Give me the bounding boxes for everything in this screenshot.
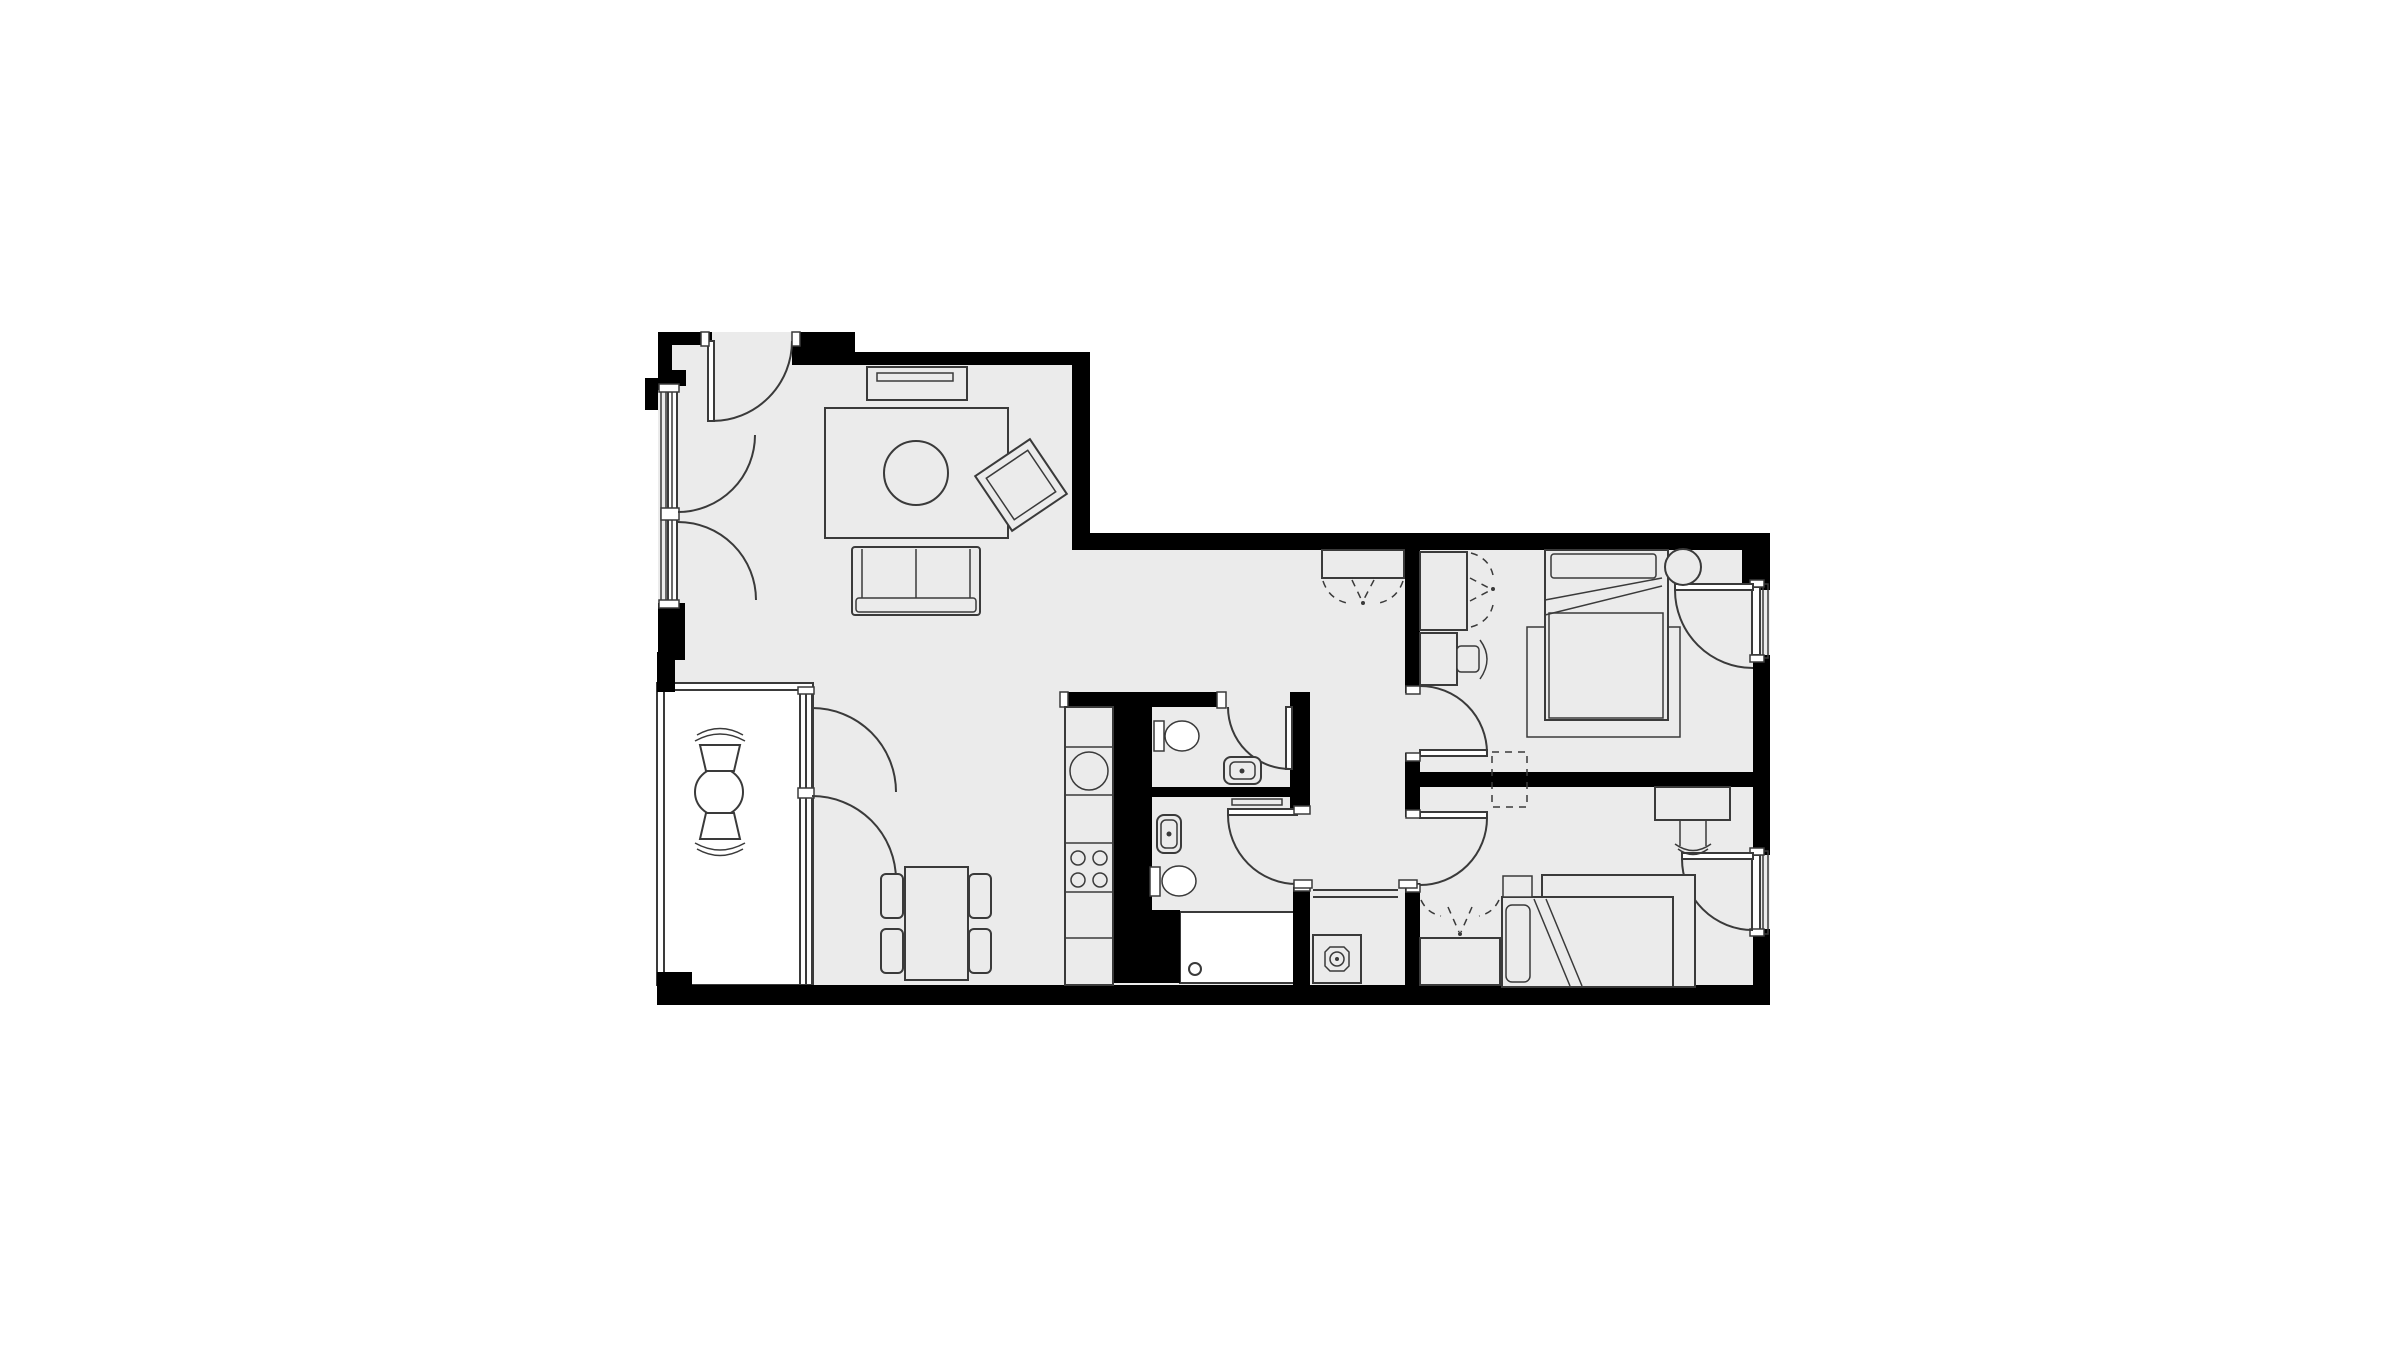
bedroom1-bed-frame xyxy=(1545,550,1668,720)
shower-tray xyxy=(1180,912,1295,983)
bedroom1-wardrobe-dot xyxy=(1491,587,1495,591)
bedroom1-wardrobe xyxy=(1420,552,1467,630)
bedroom1-door-leaf xyxy=(1420,750,1487,756)
wall-left-mid xyxy=(658,603,685,660)
kitchen-wall-jamb xyxy=(1060,692,1068,707)
bathroom1-sink-tap xyxy=(1240,769,1245,774)
wall-left-mid-lower xyxy=(657,652,675,692)
wall-living-right xyxy=(1072,363,1090,535)
wall-corridor-right-upper xyxy=(1405,543,1420,693)
bedroom2-door-jamb-top xyxy=(1406,810,1420,818)
wall-left-nub xyxy=(645,378,658,410)
wall-bedroom-divider xyxy=(1405,772,1770,787)
window-left-tick-bottom xyxy=(659,600,679,608)
bathroom2-door-jamb-top xyxy=(1294,806,1310,814)
wall-north xyxy=(1072,533,1770,550)
floor-living-right xyxy=(855,352,1090,692)
bedroom2-desk xyxy=(1655,787,1730,820)
bedroom2-door-leaf xyxy=(1420,812,1487,818)
bathroom2-toilet-bowl xyxy=(1162,866,1196,896)
entry-jamb-left xyxy=(701,332,709,346)
wall-right-mid xyxy=(1753,655,1770,855)
bedroom1-door-jamb-bottom xyxy=(1406,753,1420,761)
balcony-table xyxy=(695,768,743,816)
bathroom1-door-jamb xyxy=(1217,692,1226,708)
hall-door-jamb-left xyxy=(1294,880,1312,888)
window-left-mullion xyxy=(661,508,679,520)
hall-door-jamb-right xyxy=(1399,880,1417,888)
dining-chair-1 xyxy=(881,874,903,918)
balcony-chair-top-seat xyxy=(700,745,740,771)
window-left-tick-top xyxy=(659,384,679,392)
coffee-table xyxy=(884,441,948,505)
entry-jamb-right xyxy=(792,332,800,346)
wall-bath-divider xyxy=(1152,787,1297,797)
bathroom2-toilet-tank xyxy=(1150,867,1160,896)
corridor-wardrobe-dot xyxy=(1361,601,1365,605)
floor-plan-page xyxy=(0,0,2400,1350)
dining-chair-3 xyxy=(969,874,991,918)
window-bedroom1-glass xyxy=(1752,587,1760,655)
wall-top-c xyxy=(855,352,1090,365)
corridor-wardrobe xyxy=(1322,550,1404,578)
dining-chair-2 xyxy=(881,929,903,973)
balcony-chair-bottom-seat xyxy=(700,813,740,839)
bedroom2-bed-frame xyxy=(1502,897,1673,987)
wall-bath2-right-lower xyxy=(1293,887,1310,985)
bathroom1-toilet-bowl xyxy=(1165,721,1199,751)
balcony-glazing-top-tick xyxy=(798,687,814,694)
entry-door-leaf xyxy=(708,341,714,421)
washing-machine-dot xyxy=(1335,957,1339,961)
bathroom2-door-leaf xyxy=(1228,809,1297,815)
bathroom1-toilet-tank xyxy=(1154,721,1164,751)
wall-top-b xyxy=(792,332,855,365)
wall-hall-bedroom2 xyxy=(1405,883,1420,985)
bathroom2-sink-tap xyxy=(1167,832,1172,837)
bedroom1-bedside-table xyxy=(1665,549,1701,585)
dining-table xyxy=(905,867,968,980)
wall-kitchen-bath-top xyxy=(1063,692,1225,707)
wall-shaft-lower xyxy=(1130,910,1180,983)
bathroom1-door-leaf xyxy=(1286,707,1292,769)
bedroom2-bed-headbox xyxy=(1503,876,1532,897)
bedroom1-chair-seat xyxy=(1457,646,1479,672)
bedroom2-wardrobe xyxy=(1420,938,1500,985)
bedroom2-wardrobe-dot xyxy=(1458,932,1462,936)
window-bedroom2-glass xyxy=(1752,855,1760,930)
floor-plan xyxy=(0,0,2400,1350)
bedroom1-desk xyxy=(1420,633,1457,685)
balcony-glazing-mullion xyxy=(798,788,814,798)
sideboard xyxy=(867,367,967,400)
window-bedroom1-tick-bottom xyxy=(1750,655,1764,662)
kitchen-counter xyxy=(1065,707,1113,985)
dining-chair-4 xyxy=(969,929,991,973)
bedroom1-door-jamb-top xyxy=(1406,686,1420,694)
